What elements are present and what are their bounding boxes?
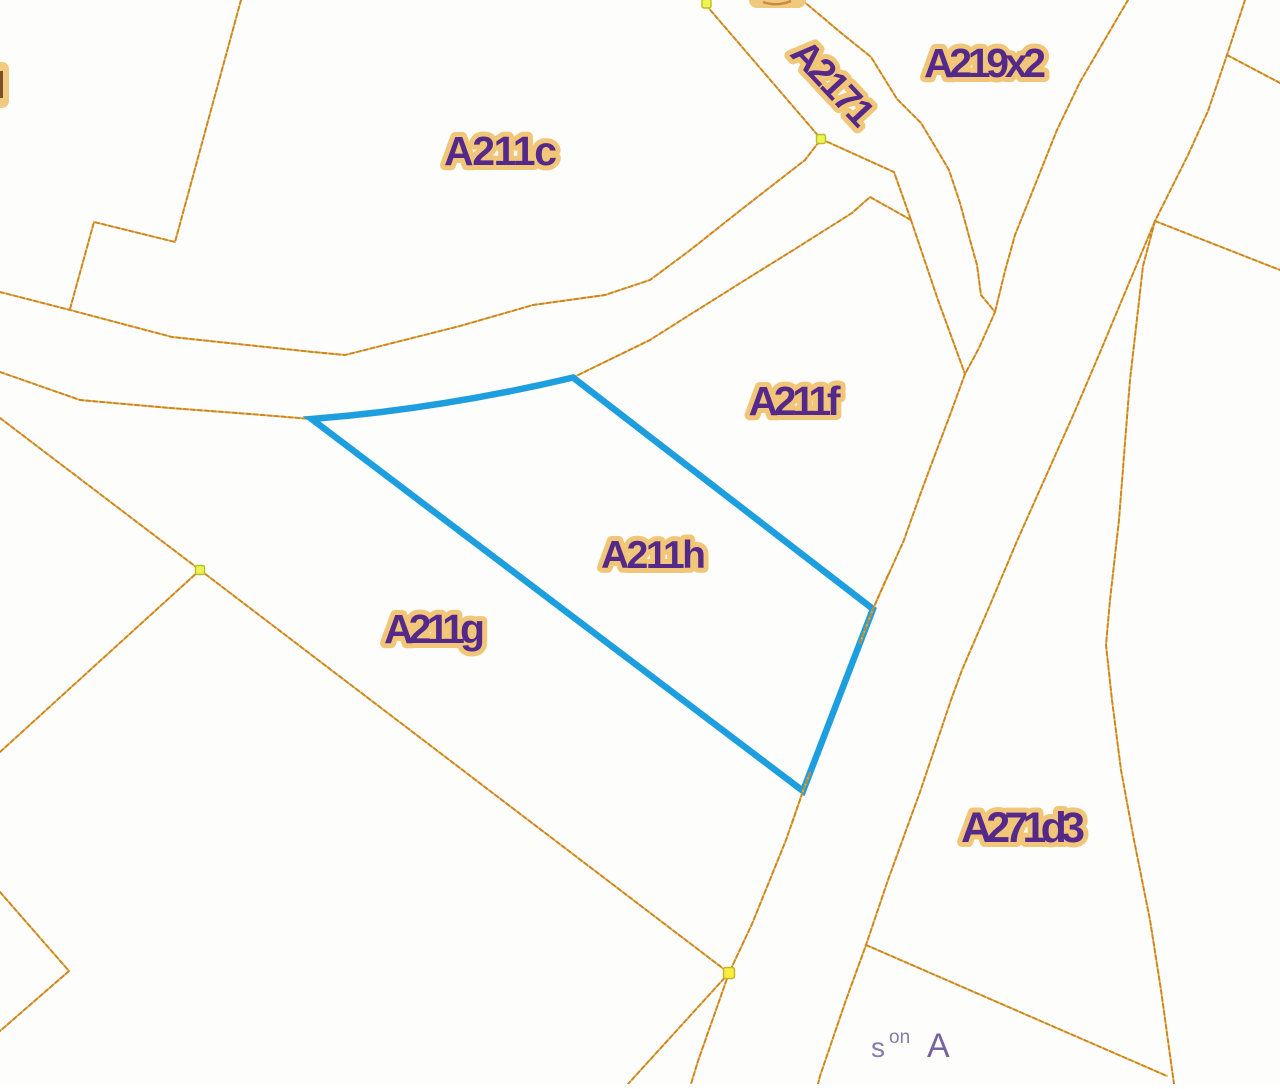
- svg-text:A211f: A211f: [749, 378, 841, 424]
- svg-text:A271d3: A271d3: [961, 804, 1085, 852]
- svg-text:A211c: A211c: [444, 128, 557, 174]
- svg-text:on: on: [889, 1027, 910, 1048]
- svg-text:A211g: A211g: [384, 606, 485, 652]
- svg-text:A219x2: A219x2: [924, 40, 1046, 86]
- svg-text:A: A: [927, 1027, 950, 1065]
- svg-text:s: s: [871, 1032, 885, 1063]
- svg-text:A211h: A211h: [601, 534, 706, 577]
